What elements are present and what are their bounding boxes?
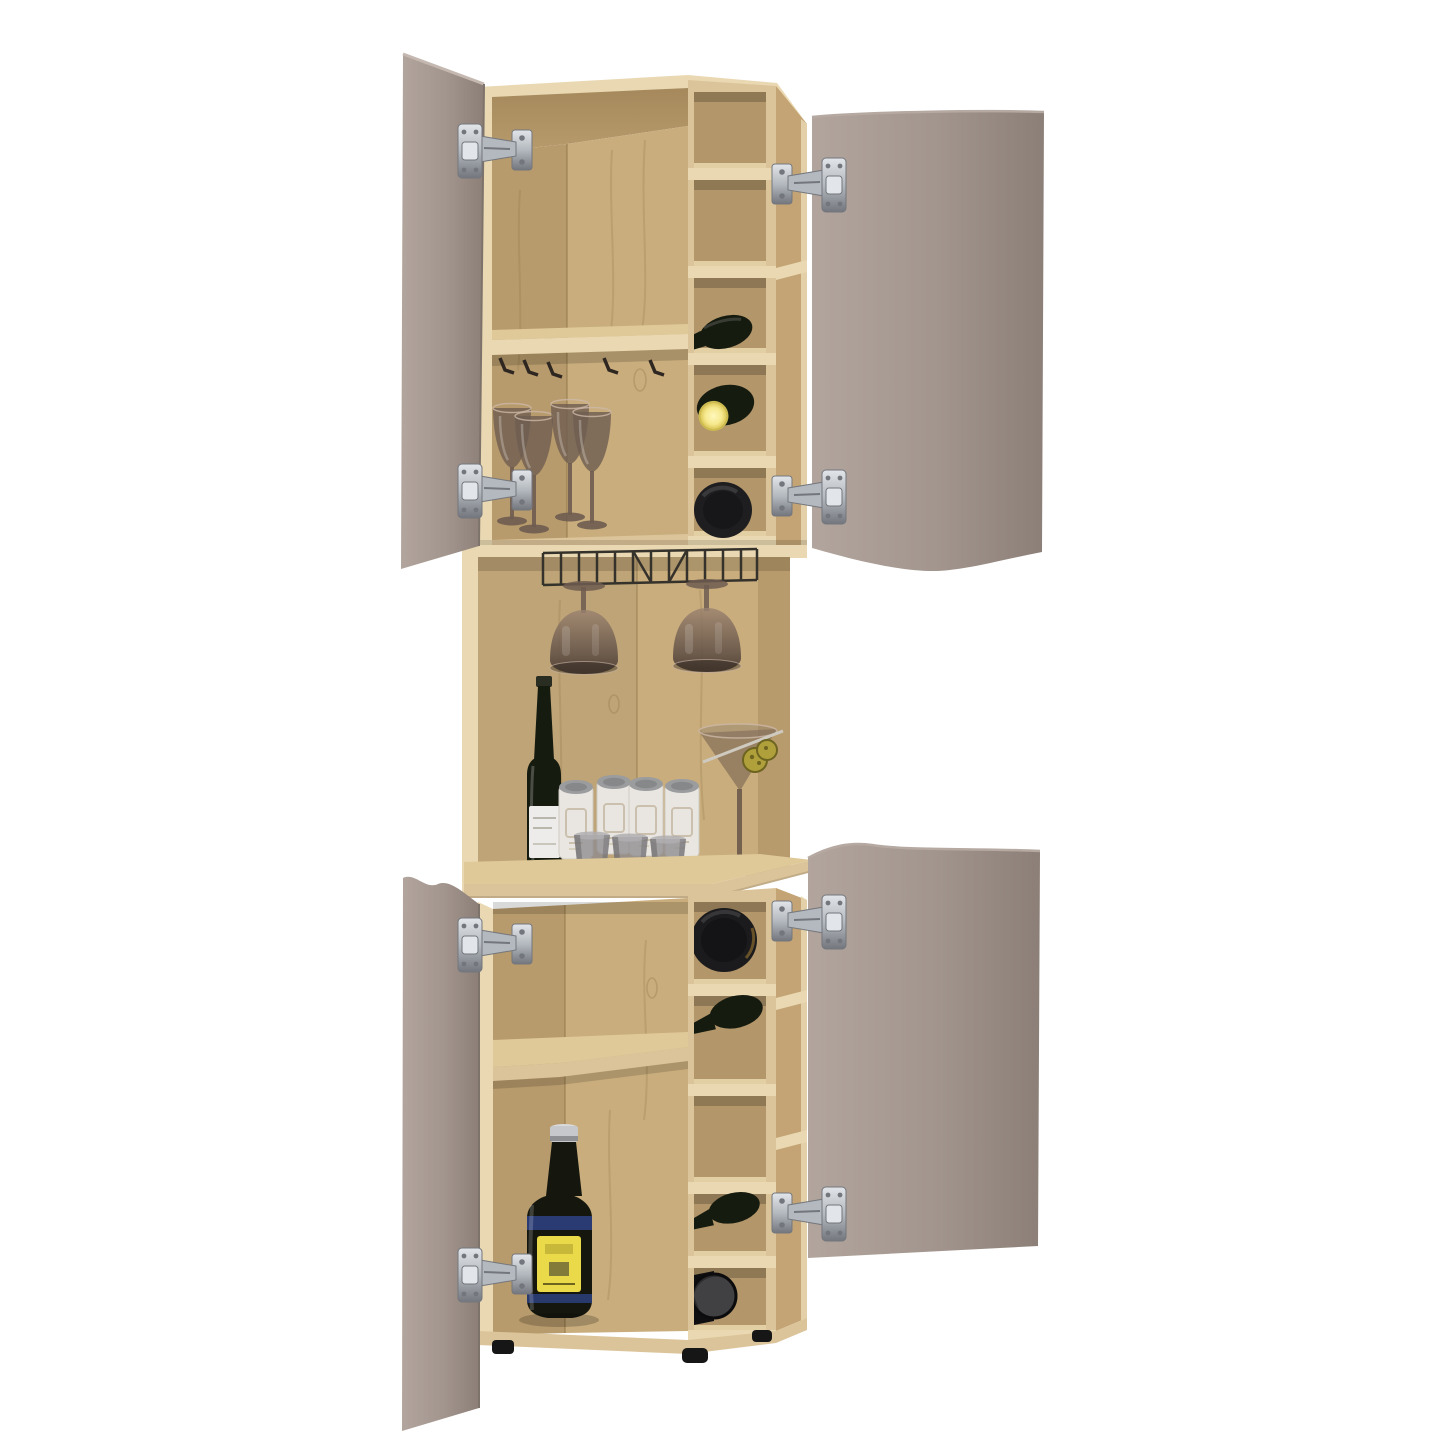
lower-wine-rack-column <box>673 888 776 1340</box>
foot <box>492 1340 514 1354</box>
upper-cubby-openings <box>694 92 766 536</box>
door-hinge <box>772 470 846 524</box>
foot <box>682 1348 708 1363</box>
foot <box>752 1330 772 1342</box>
door-hinge <box>772 158 846 212</box>
middle-right-wall <box>758 557 790 876</box>
upper-right-door <box>812 111 1044 571</box>
lower-corner-return <box>776 888 807 1331</box>
product-image-canvas: Corner bar cabinet with four open taupe … <box>0 0 1445 1445</box>
wine-bottle-bottom <box>691 908 757 972</box>
corner-bar-cabinet-render <box>0 0 1445 1445</box>
upper-shelf <box>492 324 688 366</box>
middle-left-edge-band <box>462 546 478 898</box>
wine-bottle-bottom <box>694 482 752 538</box>
